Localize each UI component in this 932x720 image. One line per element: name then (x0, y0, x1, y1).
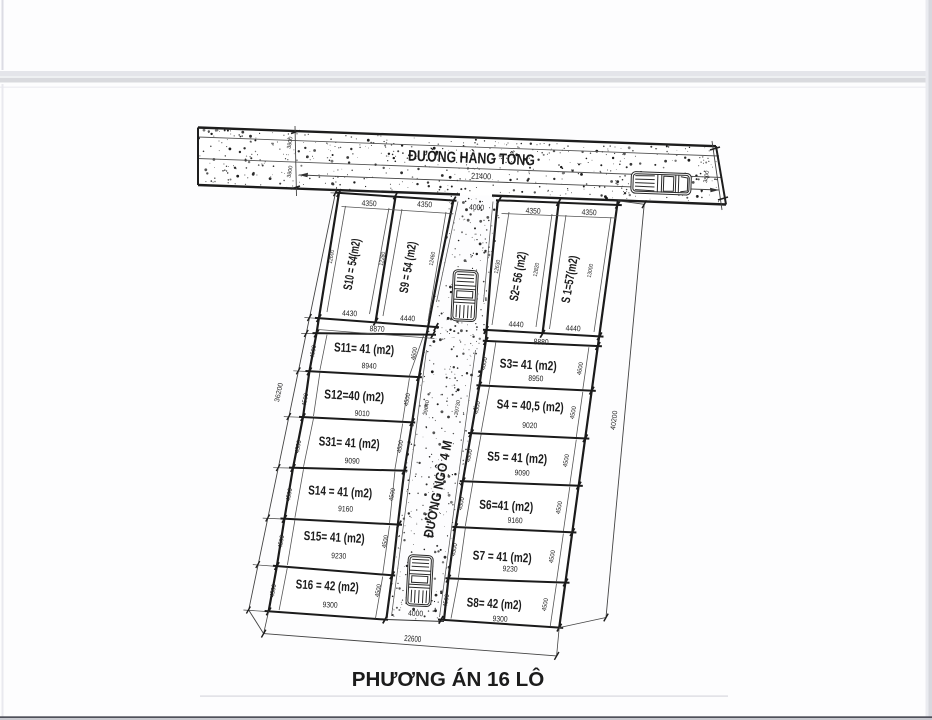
svg-text:4350: 4350 (525, 206, 541, 216)
svg-text:9020: 9020 (522, 421, 538, 431)
svg-text:8880: 8880 (533, 337, 549, 347)
svg-text:S8= 42 (m2): S8= 42 (m2) (466, 595, 522, 613)
svg-text:S12=40 (m2): S12=40 (m2) (324, 386, 385, 404)
svg-text:4430: 4430 (342, 309, 358, 319)
svg-text:9300: 9300 (492, 614, 508, 624)
svg-text:S7 = 41 (m2): S7 = 41 (m2) (472, 547, 532, 565)
svg-text:PHƯƠNG ÁN 16 LÔ: PHƯƠNG ÁN 16 LÔ (352, 667, 545, 691)
svg-text:S11= 41 (m2): S11= 41 (m2) (334, 339, 395, 357)
svg-text:4000: 4000 (408, 609, 424, 619)
svg-text:9230: 9230 (502, 564, 518, 574)
svg-text:4350: 4350 (417, 200, 433, 210)
svg-text:8940: 8940 (361, 361, 377, 371)
svg-text:S5 = 41 (m2): S5 = 41 (m2) (487, 448, 548, 466)
svg-text:9010: 9010 (354, 409, 370, 419)
svg-text:4440: 4440 (565, 324, 581, 334)
svg-text:S31= 41 (m2): S31= 41 (m2) (318, 433, 380, 451)
svg-text:4440: 4440 (400, 314, 416, 324)
svg-text:4440: 4440 (508, 320, 524, 330)
svg-text:8870: 8870 (369, 324, 385, 334)
svg-text:S6=41 (m2): S6=41 (m2) (479, 497, 534, 515)
svg-text:4350: 4350 (581, 208, 597, 218)
svg-text:9160: 9160 (338, 504, 354, 514)
svg-text:9230: 9230 (331, 551, 347, 561)
svg-text:S3= 41 (m2): S3= 41 (m2) (499, 356, 557, 374)
svg-text:4350: 4350 (361, 199, 377, 209)
svg-text:4000: 4000 (469, 203, 485, 213)
svg-text:8950: 8950 (528, 374, 544, 384)
svg-text:S15= 41 (m2): S15= 41 (m2) (303, 528, 365, 546)
svg-text:9160: 9160 (507, 516, 523, 526)
svg-text:22600: 22600 (404, 633, 422, 644)
svg-text:9300: 9300 (322, 600, 338, 610)
svg-text:9090: 9090 (344, 456, 360, 466)
svg-text:9090: 9090 (514, 468, 530, 478)
svg-text:21400: 21400 (471, 171, 492, 182)
